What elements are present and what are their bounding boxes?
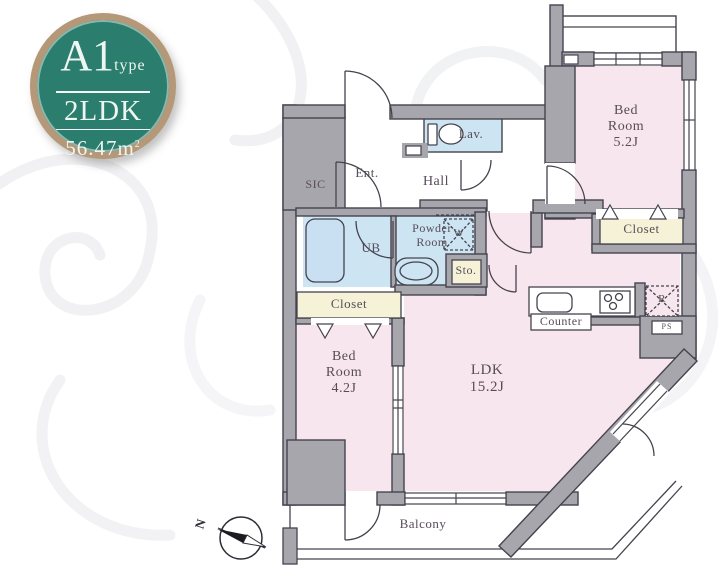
powder-sink-icon bbox=[395, 258, 438, 285]
closet-left-label: Closet bbox=[297, 297, 401, 312]
room-entrance bbox=[345, 92, 392, 210]
lavatory-label: Lav. bbox=[445, 127, 497, 142]
badge-divider bbox=[56, 129, 150, 131]
ldk-label: LDK15.2J bbox=[427, 362, 547, 397]
balcony-door bbox=[345, 505, 380, 540]
plan-name-suffix: type bbox=[114, 57, 146, 74]
compass bbox=[217, 517, 266, 559]
balcony-label: Balcony bbox=[378, 517, 468, 532]
badge-divider bbox=[56, 91, 150, 93]
counter-label: Counter bbox=[533, 315, 589, 329]
plan-area: 56.47m2 bbox=[37, 133, 169, 160]
ub-label: UB bbox=[348, 241, 394, 256]
eave-outline bbox=[562, 16, 676, 53]
bedroom2-label: BedRoom4.2J bbox=[294, 349, 394, 397]
plan-type-badge: A1type 2LDK 56.47m2 bbox=[30, 13, 176, 159]
storage-label: Sto. bbox=[446, 264, 486, 278]
plan-layout: 2LDK bbox=[37, 96, 169, 126]
bathtub-icon bbox=[306, 219, 344, 282]
bedroom1-label: BedRoom5.2J bbox=[570, 103, 682, 151]
entrance-label: Ent. bbox=[338, 166, 396, 181]
pipe-space-label: PS bbox=[652, 322, 682, 331]
floor-plan-page: A1type 2LDK 56.47m2 BedRoom5.2J Closet C… bbox=[0, 0, 727, 568]
refrigerator-label: R bbox=[652, 293, 672, 306]
plan-name: A1type bbox=[37, 34, 169, 88]
sic-label: SIC bbox=[295, 178, 336, 192]
hall-label: Hall bbox=[402, 174, 470, 190]
closet-right-label: Closet bbox=[600, 222, 683, 237]
washer-label: W bbox=[448, 227, 470, 240]
